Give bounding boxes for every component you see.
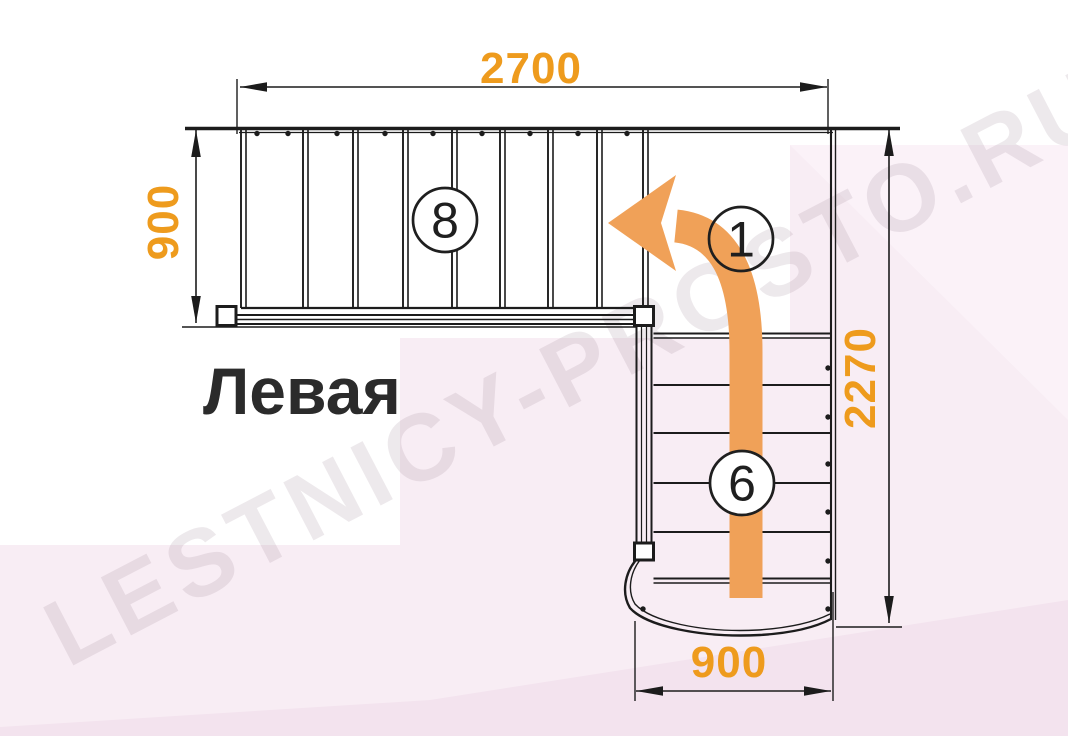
direction-arrow-shaft <box>676 226 746 598</box>
newel-post <box>217 307 236 326</box>
tread-dot <box>285 131 290 136</box>
dimension-arrowhead <box>191 130 201 157</box>
callout-number: 8 <box>431 193 459 249</box>
newel-post <box>635 307 654 326</box>
tread-dot <box>254 131 259 136</box>
dimension-arrowhead <box>240 82 267 92</box>
dimension-arrowhead <box>636 686 663 696</box>
tread-dot <box>825 606 830 611</box>
staircase-drawing: 816 <box>0 0 1068 736</box>
tread-dot <box>825 509 830 514</box>
dimension-arrowhead <box>191 296 201 323</box>
tread-dot <box>527 131 532 136</box>
tread-dot <box>825 558 830 563</box>
tread-dot <box>334 131 339 136</box>
stair-plan-diagram: LESTNICY-PROSTO.RU 816 2700 900 2270 900… <box>0 0 1068 736</box>
tread-dot <box>479 131 484 136</box>
direction-arrow-head <box>608 175 676 271</box>
dimension-bottom-900: 900 <box>691 641 767 685</box>
dimension-arrowhead <box>800 82 827 92</box>
tread-dot <box>382 131 387 136</box>
dimension-arrowhead <box>884 129 894 156</box>
dimension-left-900: 900 <box>142 184 186 260</box>
dimension-right-2270: 2270 <box>839 327 883 429</box>
callout-number: 1 <box>727 212 755 268</box>
tread-dot <box>575 131 580 136</box>
callout-number: 6 <box>728 456 756 512</box>
tread-dot <box>825 414 830 419</box>
stair-orientation-title: Левая <box>203 358 401 424</box>
tread-dot <box>430 131 435 136</box>
tread-dot <box>825 461 830 466</box>
dimension-arrowhead <box>804 686 831 696</box>
dimension-top-2700: 2700 <box>480 47 582 91</box>
newel-post <box>635 543 654 560</box>
tread-dot <box>825 365 830 370</box>
tread-dot <box>624 131 629 136</box>
dimension-arrowhead <box>884 596 894 623</box>
